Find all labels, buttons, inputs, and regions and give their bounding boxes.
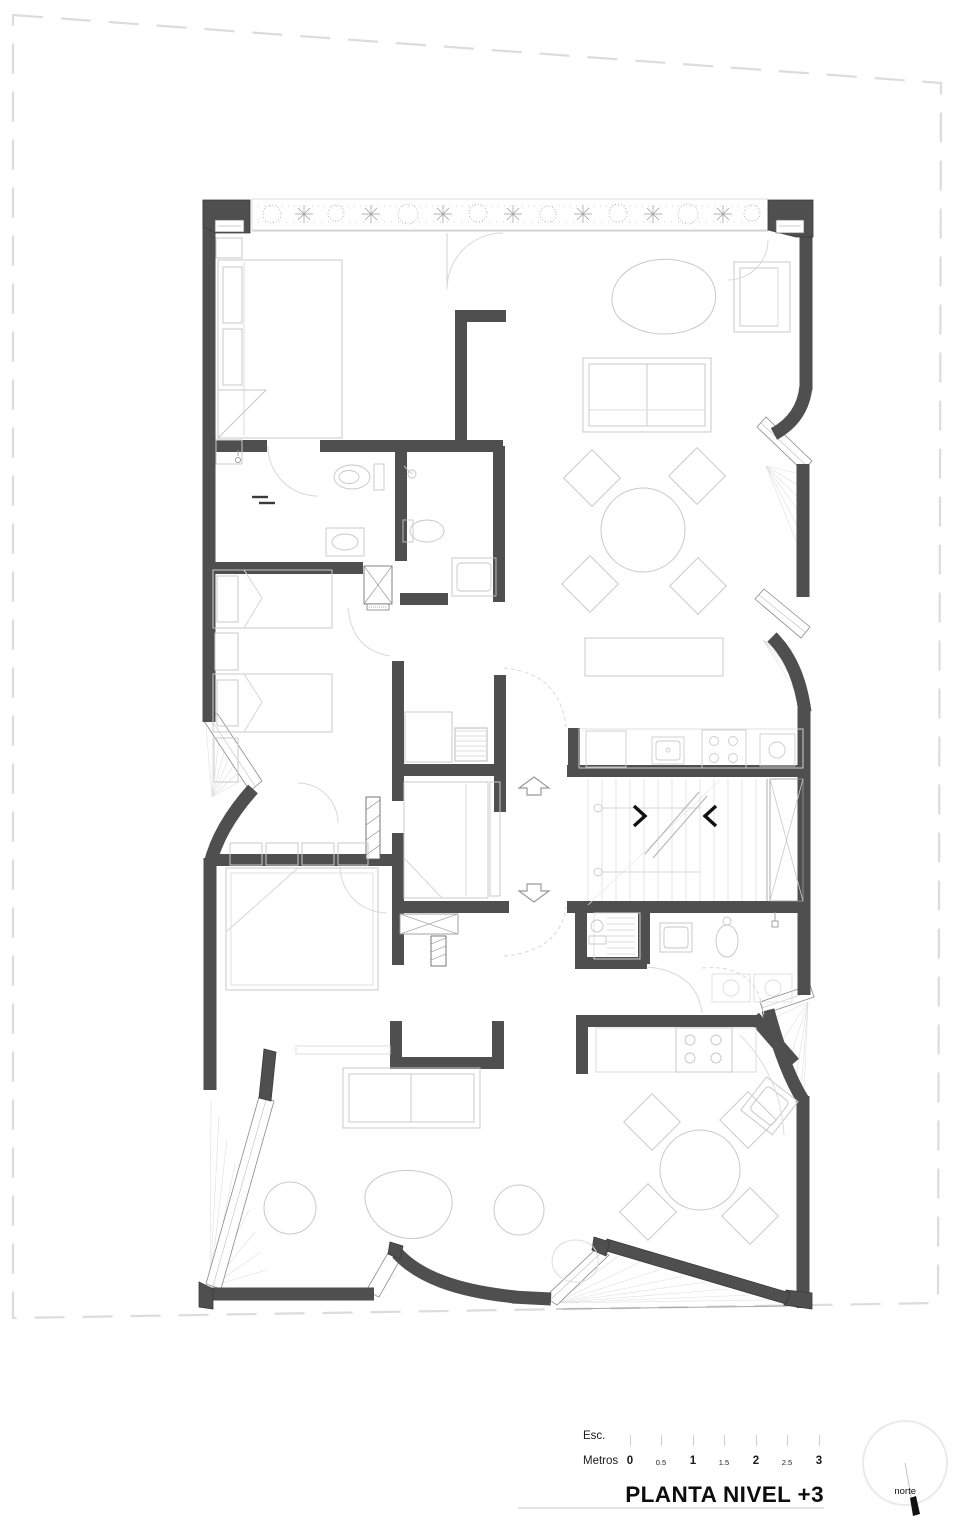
bathroom-fixtures (235, 450, 792, 1002)
scale-number: 2.5 (782, 1458, 792, 1467)
scale-number: 0 (627, 1455, 633, 1467)
door-swing-arcs (268, 233, 768, 1016)
interior-walls (203, 310, 807, 1074)
scale-label: Esc. (583, 1430, 605, 1442)
kitchen-fixtures-upper (579, 729, 803, 768)
scale-number: 1 (690, 1455, 696, 1467)
scale-number: 3 (816, 1455, 822, 1467)
floor-plan-drawing (0, 0, 960, 1536)
floor-plan-sheet: Esc. Metros 0 0.5 1 1.5 2 2.5 3 PLANTA N… (0, 0, 960, 1536)
stair-core (519, 777, 803, 905)
title-underline (518, 1507, 824, 1509)
scale-bar: Esc. Metros 0 0.5 1 1.5 2 2.5 3 (583, 1429, 843, 1475)
scale-tick (756, 1435, 757, 1446)
window-fan-hatch (206, 466, 808, 1303)
planter-strip (252, 199, 768, 231)
scale-tick (724, 1435, 725, 1446)
scale-tick (787, 1435, 788, 1446)
scale-number: 2 (753, 1455, 759, 1467)
entry-arrow-icon (519, 777, 549, 902)
scale-tick (819, 1435, 820, 1446)
scale-number: 1.5 (719, 1458, 729, 1467)
scale-tick (630, 1435, 631, 1446)
north-label: norte (874, 1486, 916, 1497)
north-arrow-icon (860, 1418, 952, 1518)
north-indicator: norte (860, 1418, 952, 1518)
units-label: Metros (583, 1455, 618, 1467)
scale-number: 0.5 (656, 1458, 666, 1467)
plant-icon (263, 204, 760, 224)
sheet-title: PLANTA NIVEL +3 (518, 1482, 824, 1508)
scale-tick (661, 1435, 662, 1446)
scale-tick (693, 1435, 694, 1446)
stair-break-line (645, 792, 707, 858)
